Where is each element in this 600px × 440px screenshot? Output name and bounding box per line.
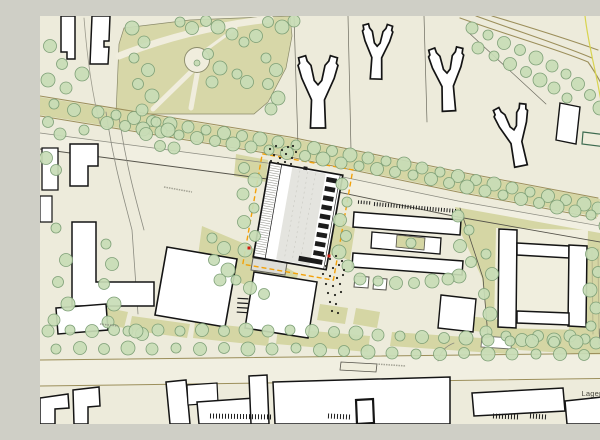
tree [411, 349, 421, 359]
tree [285, 325, 295, 335]
tree [174, 130, 184, 140]
tree [101, 239, 111, 249]
tree [472, 42, 484, 54]
paving-dot [331, 310, 333, 312]
tree [186, 22, 199, 35]
tree [226, 137, 240, 151]
tree [548, 82, 560, 94]
tree [390, 277, 403, 290]
tree [562, 93, 572, 103]
tree [40, 152, 53, 165]
tree [515, 193, 528, 206]
tree [275, 20, 289, 34]
tree [288, 16, 300, 27]
tree [454, 240, 467, 253]
tree [120, 121, 131, 132]
building-tl-1 [61, 16, 75, 59]
tree [250, 231, 261, 242]
tree [266, 343, 278, 355]
red-marker [248, 247, 251, 250]
tree [291, 343, 301, 353]
building-ne-green [582, 132, 600, 147]
paving-dot [287, 146, 289, 148]
paving-dot [281, 149, 283, 151]
tree [442, 273, 454, 285]
tree [51, 165, 62, 176]
building-gym [155, 247, 237, 327]
scale-label: Lageplan 1:500 [581, 389, 600, 398]
paving-dot [277, 162, 279, 164]
tree [211, 20, 225, 34]
comb-bb4a [493, 416, 518, 417]
tree [554, 348, 567, 361]
tree [336, 178, 348, 190]
tree [362, 152, 374, 164]
tree [48, 314, 60, 326]
tree [265, 103, 277, 115]
tree [41, 73, 55, 87]
tree [99, 344, 110, 355]
paving-dot [336, 277, 338, 279]
tree [505, 336, 515, 346]
paving-dot [284, 161, 286, 163]
tree [506, 182, 518, 194]
tree [526, 335, 539, 348]
platform-3 [340, 362, 377, 372]
tree [42, 325, 54, 337]
entry-tick [303, 166, 308, 170]
tree [466, 22, 478, 34]
tree [219, 326, 230, 337]
tree [444, 178, 455, 189]
tree [136, 104, 148, 116]
building-court-north [517, 243, 569, 258]
tree [49, 99, 59, 109]
tree [57, 59, 68, 70]
tree [226, 28, 238, 40]
paving-dot [327, 292, 329, 294]
tree [259, 289, 270, 300]
tree [107, 297, 121, 311]
tree [106, 258, 119, 271]
tree [459, 348, 470, 359]
tree [161, 123, 175, 137]
paving-dot [290, 163, 292, 165]
tree [460, 180, 474, 194]
tree [586, 321, 596, 331]
paving-dot [270, 160, 272, 162]
site-plan-svg [40, 16, 600, 424]
tree [92, 106, 104, 118]
tree [238, 216, 251, 229]
tree [371, 163, 384, 176]
tree [245, 141, 257, 153]
tree [196, 324, 209, 337]
building-court-south [517, 311, 569, 325]
tree [145, 89, 159, 103]
tree [397, 157, 411, 171]
tree [214, 274, 226, 286]
building-court-west [498, 229, 517, 328]
tree [79, 125, 89, 135]
tree [237, 188, 249, 200]
tree [373, 276, 383, 286]
tree [381, 156, 391, 166]
tree [579, 350, 590, 361]
paving-dot [340, 291, 342, 293]
tree [194, 343, 207, 356]
tree [111, 110, 121, 120]
tree [425, 274, 439, 288]
paving-dot [292, 145, 294, 147]
paving-dot [323, 255, 325, 257]
building-s-tower [166, 380, 190, 424]
tree [201, 125, 211, 135]
tree [489, 51, 499, 61]
tree [583, 283, 597, 297]
tree [515, 45, 526, 56]
tree [133, 79, 144, 90]
paving-dot [273, 154, 275, 156]
tree [101, 117, 114, 130]
tree [248, 173, 262, 187]
building-s-corner [356, 399, 374, 424]
tree [140, 128, 153, 141]
tree [533, 73, 547, 87]
tree [54, 128, 66, 140]
tree [155, 141, 166, 152]
paving-dot [291, 157, 293, 159]
tree [60, 82, 72, 94]
tree [300, 151, 311, 162]
tree [306, 325, 319, 338]
tree [61, 297, 75, 311]
tree [244, 282, 257, 295]
tree [146, 343, 158, 355]
tree [464, 225, 474, 235]
tree [466, 257, 477, 268]
paving-dot [343, 269, 345, 271]
tree [408, 170, 418, 180]
tree [569, 205, 581, 217]
paving-dot [295, 151, 297, 153]
paving-dot [329, 275, 331, 277]
paving-dot [341, 260, 343, 262]
building-se-small [438, 295, 476, 332]
tree [586, 248, 599, 261]
tree [483, 30, 493, 40]
tree [534, 198, 545, 209]
tree [342, 197, 352, 207]
tree [498, 190, 508, 200]
tree [270, 64, 283, 77]
tree [53, 277, 64, 288]
tree [238, 243, 252, 257]
tree [151, 117, 161, 127]
tree [329, 327, 340, 338]
tree [74, 342, 87, 355]
tree [406, 238, 416, 248]
tree [341, 231, 352, 242]
tree [168, 142, 180, 154]
paving-dot [332, 285, 334, 287]
tree [585, 90, 596, 101]
tree [416, 162, 428, 174]
tree [138, 36, 150, 48]
building-se-slab [472, 388, 565, 416]
tree [129, 324, 143, 338]
tree [334, 214, 347, 227]
tree [232, 69, 242, 79]
paving-dot [275, 145, 277, 147]
tree [129, 53, 139, 63]
paving-dot [329, 301, 331, 303]
paving-dot [325, 265, 327, 267]
tree [241, 76, 254, 89]
tree [572, 78, 585, 91]
tree [339, 346, 350, 357]
tree [498, 37, 511, 50]
tree [479, 185, 491, 197]
tree [51, 344, 61, 354]
paving-dot [342, 274, 344, 276]
tree [550, 200, 564, 214]
paving-dot [335, 303, 337, 305]
tree [209, 255, 220, 266]
tree [386, 347, 398, 359]
tree [452, 210, 464, 222]
tree [171, 343, 181, 353]
tree [99, 279, 110, 290]
tree [239, 163, 250, 174]
tree [206, 76, 218, 88]
tree [272, 136, 284, 148]
paving-dot [339, 283, 341, 285]
tree [121, 341, 135, 355]
paving-dot [335, 255, 337, 257]
tree [65, 325, 75, 335]
building-ne-1 [556, 103, 580, 144]
tree [271, 91, 285, 105]
park-plaza-center [194, 60, 200, 66]
paving-dot [325, 283, 327, 285]
tree [332, 245, 346, 259]
tree [175, 326, 185, 336]
tree [152, 324, 164, 336]
tree [486, 268, 499, 281]
tree [561, 69, 571, 79]
tree [43, 117, 54, 128]
tree [372, 329, 384, 341]
tree [207, 233, 217, 243]
tree [291, 140, 301, 150]
tree [142, 64, 155, 77]
building-left-3 [40, 196, 52, 222]
tree [125, 21, 139, 35]
tree [409, 278, 420, 289]
tree [249, 203, 259, 213]
building-s-slab [197, 398, 257, 424]
tree [481, 249, 491, 259]
tree [316, 152, 330, 166]
tree [60, 254, 73, 267]
tree [182, 121, 194, 133]
tree [459, 331, 473, 345]
tree [361, 345, 375, 359]
tree [483, 307, 497, 321]
red-marker [328, 255, 331, 258]
tree [504, 58, 517, 71]
site-plan: Lageplan 1:500 [40, 16, 600, 424]
tree [201, 16, 212, 27]
tree [349, 326, 363, 340]
tree [210, 136, 221, 147]
tree [425, 173, 438, 186]
tree [416, 331, 429, 344]
tree [219, 343, 230, 354]
tree [264, 145, 274, 155]
tree [529, 51, 543, 65]
tree [68, 104, 81, 117]
paving-dot [329, 258, 331, 260]
tree [546, 60, 558, 72]
tree [213, 61, 227, 75]
tree [549, 337, 560, 348]
tree [75, 67, 89, 81]
tree [590, 337, 600, 349]
paving-dot [338, 264, 340, 266]
paving-dot [322, 273, 324, 275]
building-tl-2 [90, 16, 110, 64]
tree [531, 349, 541, 359]
tree [191, 132, 204, 145]
tree [481, 347, 495, 361]
tree [250, 30, 263, 43]
tree [44, 40, 57, 53]
tree [241, 342, 255, 356]
paving-dot [279, 157, 281, 159]
tree [593, 267, 600, 278]
tree [239, 323, 253, 337]
paving-dot [334, 294, 336, 296]
tree [51, 223, 61, 233]
tree [203, 49, 214, 60]
tree [506, 348, 518, 360]
tree [434, 348, 447, 361]
tree [586, 210, 596, 220]
tree [261, 53, 271, 63]
tree [590, 302, 600, 314]
tree [335, 157, 347, 169]
tree [354, 161, 364, 171]
tree [482, 334, 494, 346]
tree [231, 275, 241, 285]
tree [521, 67, 532, 78]
tree [263, 79, 274, 90]
tree [569, 335, 583, 349]
tree [263, 17, 274, 28]
tree [262, 325, 274, 337]
tree [479, 289, 490, 300]
paving-dot [285, 153, 287, 155]
paving-dot [269, 148, 271, 150]
tree [86, 325, 99, 338]
tree [218, 242, 231, 255]
paving-dot [332, 267, 334, 269]
tree [314, 344, 327, 357]
paving-dot [337, 312, 339, 314]
tree [354, 273, 366, 285]
tree [395, 331, 405, 341]
tree [175, 17, 185, 27]
tree [439, 333, 450, 344]
tree [239, 37, 249, 47]
